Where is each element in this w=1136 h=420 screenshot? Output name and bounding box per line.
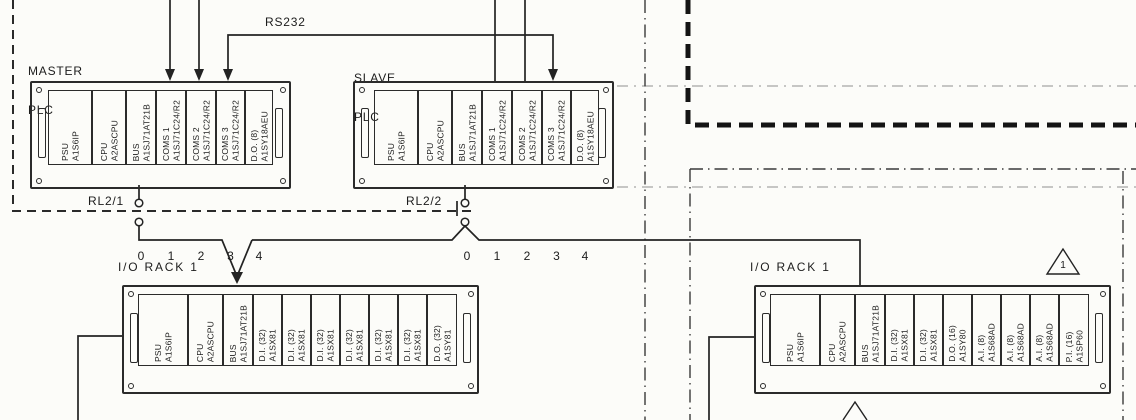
rack-corner-screw — [1100, 291, 1106, 297]
master-slot-0: BUSA1SJ71AT21B — [126, 90, 156, 165]
slot-role-label: P.I. (16) — [1064, 330, 1075, 362]
rack-corner-screw — [603, 178, 609, 184]
slot-part-number: A1SJ71C24/R2 — [557, 100, 568, 161]
io_right-slot-0: BUSA1SJ71AT21B — [855, 294, 885, 366]
slot-text: P.I. (16)A1SP60 — [1064, 330, 1085, 362]
slot-text: PSUA1S6IP — [386, 131, 407, 161]
slot-number: 0 — [138, 249, 145, 263]
slot-role-label: COMS 3 — [220, 100, 231, 161]
io_left-slot-3: D.I. (32)A1SX81 — [311, 294, 340, 366]
slot-part-number: A2ASCPU — [838, 321, 849, 362]
slot-role-label: D.I. (32) — [373, 329, 384, 362]
slot-text: CPUA2ASCPU — [195, 321, 216, 362]
slot-text: BUSA1SJ71AT21B — [131, 104, 152, 161]
master-slot-cpu: CPUA2ASCPU — [92, 90, 126, 165]
master-slot-psu: PSUA1S6IP — [48, 90, 92, 165]
slot-part-number: A1SX81 — [900, 329, 911, 362]
rack-corner-screw — [128, 291, 134, 297]
slot-text: CPUA2ASCPU — [99, 120, 120, 161]
slot-text: COMS 1A1SJ71C24/R2 — [487, 100, 508, 161]
slot-part-number: A1SJ71C24/R2 — [201, 100, 212, 161]
slot-text: PSUA1S6IP — [153, 332, 174, 362]
slot-text: PSUA1S6IP — [785, 332, 806, 362]
slot-role-label: BUS — [457, 104, 468, 161]
slot-text: D.I. (32)A1SX81 — [257, 329, 278, 362]
slot-text: D.I. (32)A1SX81 — [315, 329, 336, 362]
io_left-slot-5: D.I. (32)A1SX81 — [369, 294, 398, 366]
rack-end-connector-bar — [130, 313, 138, 363]
slot-role-label: COMS 2 — [517, 100, 528, 161]
plc-network-schematic: MASTER PLC SLAVE PLC RS232 RL2/1 RL2/2 I… — [0, 0, 1136, 420]
rl2-1-label: RL2/1 — [88, 195, 124, 208]
slot-role-label: CPU — [425, 120, 436, 161]
slot-number: 1 — [494, 249, 501, 263]
slot-role-label: COMS 2 — [191, 100, 202, 161]
master-plc-rack: PSUA1S6IPCPUA2ASCPUBUSA1SJ71AT21B0COMS 1… — [30, 81, 291, 189]
slot-role-label: PSU — [386, 131, 397, 161]
slot-text: CPUA2ASCPU — [425, 120, 446, 161]
master-slot-4: D.O. (8)A1SY18AEU — [245, 90, 273, 165]
slave-slot-1: COMS 1A1SJ71C24/R2 — [482, 90, 512, 165]
slot-part-number: A1SJ71C24/R2 — [527, 100, 538, 161]
rs232-label: RS232 — [265, 16, 306, 29]
slot-part-number: A1S6IP — [396, 131, 407, 161]
slot-part-number: A1SJ71AT21B — [467, 104, 478, 161]
slot-text: D.I. (32)A1SX81 — [402, 329, 423, 362]
slot-part-number: A2ASCPU — [206, 321, 217, 362]
slot-part-number: A1SX81 — [413, 329, 424, 362]
slot-part-number: A1SJ71AT21B — [870, 305, 881, 362]
slave-slot-3: COMS 3A1SJ71C24/R2 — [542, 90, 571, 165]
rack-corner-screw — [280, 87, 286, 93]
io_right-slot-1: D.I. (32)A1SX81 — [885, 294, 914, 366]
rack-corner-screw — [359, 87, 365, 93]
slot-text: D.O. (32)A1SY81 — [432, 325, 453, 362]
slot-part-number: A1SX81 — [268, 329, 279, 362]
slot-part-number: A1SX81 — [384, 329, 395, 362]
io_left-slot-cpu: CPUA2ASCPU — [188, 294, 223, 366]
slot-role-label: BUS — [860, 305, 871, 362]
slot-text: A.I. (8)A1S68AD — [976, 323, 997, 362]
rack-corner-screw — [36, 87, 42, 93]
rack-end-connector-bar — [463, 313, 471, 363]
rack-end-connector-bar — [275, 108, 283, 158]
slave-slot-psu: PSUA1S6IP — [374, 90, 418, 165]
master-coms-drop-wires — [170, 0, 199, 70]
io_right-slot-5: A.I. (8)A1S68AD — [1001, 294, 1030, 366]
slot-part-number: A1SX81 — [326, 329, 337, 362]
master-slot-1: COMS 1A1SJ71C24/R2 — [156, 90, 186, 165]
rack-end-connector-bar — [1095, 313, 1103, 363]
slot-text: BUSA1SJ71AT21B — [228, 305, 249, 362]
slot-part-number: A1SJ71C24/R2 — [171, 100, 182, 161]
rack-corner-screw — [760, 383, 766, 389]
slot-role-label: D.I. (32) — [918, 329, 929, 362]
slot-text: D.I. (32)A1SX81 — [889, 329, 910, 362]
io_right-slot-6: A.I. (8)A1S68AD — [1030, 294, 1059, 366]
rack-corner-screw — [359, 178, 365, 184]
slot-part-number: A1S6IP — [70, 131, 81, 161]
io-rack-1-left: PSUA1S6IPCPUA2ASCPUBUSA1SJ71AT21B0D.I. (… — [122, 285, 479, 394]
io_right-slot-cpu: CPUA2ASCPU — [820, 294, 855, 366]
slot-part-number: A1SJ71AT21B — [141, 104, 152, 161]
slot-role-label: PSU — [785, 332, 796, 362]
slot-part-number: A1SX81 — [297, 329, 308, 362]
slot-text: D.O. (8)A1SY18AEU — [249, 111, 270, 161]
slot-part-number: A1S6IP — [795, 332, 806, 362]
rack-corner-screw — [468, 383, 474, 389]
io-rack-right-label: I/O RACK 1 — [750, 261, 831, 274]
slot-role-label: D.O. (16) — [947, 325, 958, 362]
rack-corner-screw — [280, 178, 286, 184]
slot-part-number: A1SJ71C24/R2 — [231, 100, 242, 161]
slot-role-label: PSU — [60, 131, 71, 161]
slot-text: D.I. (32)A1SX81 — [373, 329, 394, 362]
slot-text: COMS 3A1SJ71C24/R2 — [220, 100, 241, 161]
slot-text: COMS 1A1SJ71C24/R2 — [161, 100, 182, 161]
slot-number: 1 — [168, 249, 175, 263]
slot-part-number: A1SJ71C24/R2 — [497, 100, 508, 161]
slot-part-number: A2ASCPU — [435, 120, 446, 161]
rack-corner-screw — [760, 291, 766, 297]
slot-role-label: CPU — [99, 120, 110, 161]
slot-role-label: D.I. (32) — [315, 329, 326, 362]
slot-part-number: A1SY80 — [958, 325, 969, 362]
slot-part-number: A1SY18AEU — [259, 111, 270, 161]
slot-part-number: A1S68AD — [1016, 323, 1027, 362]
rl2-2-label: RL2/2 — [406, 195, 442, 208]
rack-corner-screw — [603, 87, 609, 93]
slot-part-number: A1S6IP — [163, 332, 174, 362]
slot-role-label: BUS — [131, 104, 142, 161]
slot-role-label: PSU — [153, 332, 164, 362]
slot-role-label: D.O. (8) — [575, 111, 586, 161]
io_left-slot-7: D.O. (32)A1SY81 — [427, 294, 457, 366]
rack-end-connector-bar — [762, 313, 770, 363]
slot-text: D.O. (8)A1SY18AEU — [575, 111, 596, 161]
thick-dashed-boundary — [688, 0, 1136, 125]
slot-text: PSUA1S6IP — [60, 131, 81, 161]
slave-coms-drop-wires — [495, 0, 525, 83]
slot-text: A.I. (8)A1S68AD — [1034, 323, 1055, 362]
slot-role-label: D.I. (32) — [889, 329, 900, 362]
slot-number: 4 — [582, 249, 589, 263]
note-triangle-1-number: 1 — [1060, 260, 1066, 271]
slot-text: BUSA1SJ71AT21B — [457, 104, 478, 161]
slot-text: CPUA2ASCPU — [827, 321, 848, 362]
slot-role-label: A.I. (8) — [1034, 323, 1045, 362]
slot-role-label: COMS 1 — [487, 100, 498, 161]
slot-role-label: D.O. (32) — [432, 325, 443, 362]
io-rack-1-right: PSUA1S6IPCPUA2ASCPUBUSA1SJ71AT21B0D.I. (… — [754, 285, 1111, 394]
slot-part-number: A1SX81 — [929, 329, 940, 362]
slot-role-label: A.I. (8) — [1005, 323, 1016, 362]
slot-text: COMS 2A1SJ71C24/R2 — [191, 100, 212, 161]
io_left-slot-0: BUSA1SJ71AT21B — [223, 294, 253, 366]
slot-text: BUSA1SJ71AT21B — [860, 305, 881, 362]
slot-part-number: A1SY81 — [442, 325, 453, 362]
io_left-slot-6: D.I. (32)A1SX81 — [398, 294, 427, 366]
io_right-slot-4: A.I. (8)A1S68AD — [972, 294, 1001, 366]
slot-text: D.I. (32)A1SX81 — [918, 329, 939, 362]
slot-role-label: CPU — [195, 321, 206, 362]
io_right-slot-7: P.I. (16)A1SP60 — [1059, 294, 1089, 366]
slot-role-label: COMS 3 — [546, 100, 557, 161]
slot-role-label: BUS — [228, 305, 239, 362]
slot-text: COMS 3A1SJ71C24/R2 — [546, 100, 567, 161]
master-slot-3: COMS 3A1SJ71C24/R2 — [216, 90, 245, 165]
slot-text: A.I. (8)A1S68AD — [1005, 323, 1026, 362]
io_left-slot-2: D.I. (32)A1SX81 — [282, 294, 311, 366]
io_right-slot-psu: PSUA1S6IP — [770, 294, 820, 366]
slot-number: 2 — [198, 249, 205, 263]
slot-role-label: COMS 1 — [161, 100, 172, 161]
slot-number: 2 — [524, 249, 531, 263]
slave-slot-cpu: CPUA2ASCPU — [418, 90, 452, 165]
slot-text: D.I. (32)A1SX81 — [344, 329, 365, 362]
slot-text: COMS 2A1SJ71C24/R2 — [517, 100, 538, 161]
rack-corner-screw — [468, 291, 474, 297]
slot-role-label: D.I. (32) — [344, 329, 355, 362]
slot-number: 0 — [464, 249, 471, 263]
io_left-slot-1: D.I. (32)A1SX81 — [253, 294, 282, 366]
rack-end-connector-bar — [598, 108, 606, 158]
slot-role-label: CPU — [827, 321, 838, 362]
rack-corner-screw — [36, 178, 42, 184]
faint-boundary-lines — [617, 86, 1136, 187]
io_right-slot-3: D.O. (16)A1SY80 — [943, 294, 972, 366]
slot-role-label: D.I. (32) — [286, 329, 297, 362]
rack-corner-screw — [1100, 383, 1106, 389]
io_left-slot-psu: PSUA1S6IP — [138, 294, 188, 366]
note-triangle-2-partial — [843, 402, 867, 420]
master-slot-2: COMS 2A1SJ71C24/R2 — [186, 90, 216, 165]
slot-number: 4 — [256, 249, 263, 263]
io-rack-left-label: I/O RACK 1 — [118, 261, 199, 274]
slot-number: 3 — [227, 249, 234, 263]
slot-role-label: D.I. (32) — [257, 329, 268, 362]
slave-slot-4: D.O. (8)A1SY18AEU — [571, 90, 599, 165]
slot-role-label: D.O. (8) — [249, 111, 260, 161]
rack-corner-screw — [128, 383, 134, 389]
io_right-slot-2: D.I. (32)A1SX81 — [914, 294, 943, 366]
slot-role-label: A.I. (8) — [976, 323, 987, 362]
rack-end-connector-bar — [361, 108, 369, 158]
slot-part-number: A1S68AD — [987, 323, 998, 362]
slot-text: D.O. (16)A1SY80 — [947, 325, 968, 362]
slot-part-number: A1SP60 — [1074, 330, 1085, 362]
slot-part-number: A1SY18AEU — [585, 111, 596, 161]
slot-part-number: A2ASCPU — [109, 120, 120, 161]
slot-part-number: A1SJ71AT21B — [238, 305, 249, 362]
slot-role-label: D.I. (32) — [402, 329, 413, 362]
io_left-slot-4: D.I. (32)A1SX81 — [340, 294, 369, 366]
slot-text: D.I. (32)A1SX81 — [286, 329, 307, 362]
slave-slot-0: BUSA1SJ71AT21B — [452, 90, 482, 165]
rack-end-connector-bar — [38, 108, 46, 158]
master-plc-label-line1: MASTER — [28, 65, 83, 78]
slot-number: 3 — [553, 249, 560, 263]
slot-part-number: A1S68AD — [1045, 323, 1056, 362]
slave-plc-rack: PSUA1S6IPCPUA2ASCPUBUSA1SJ71AT21B0COMS 1… — [353, 81, 614, 189]
slave-slot-2: COMS 2A1SJ71C24/R2 — [512, 90, 542, 165]
slot-part-number: A1SX81 — [355, 329, 366, 362]
